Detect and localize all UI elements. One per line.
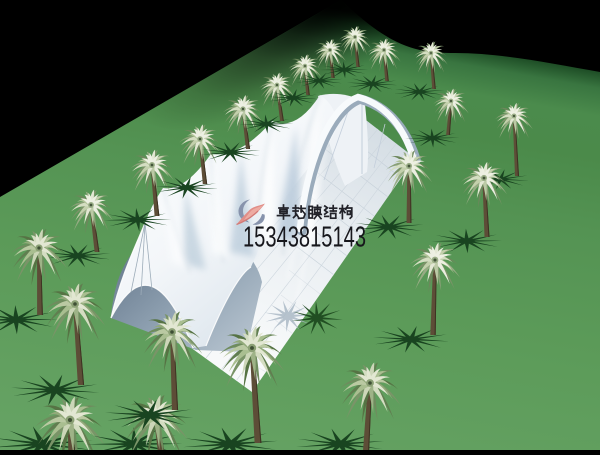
svg-text:15343815143: 15343815143	[243, 222, 366, 254]
